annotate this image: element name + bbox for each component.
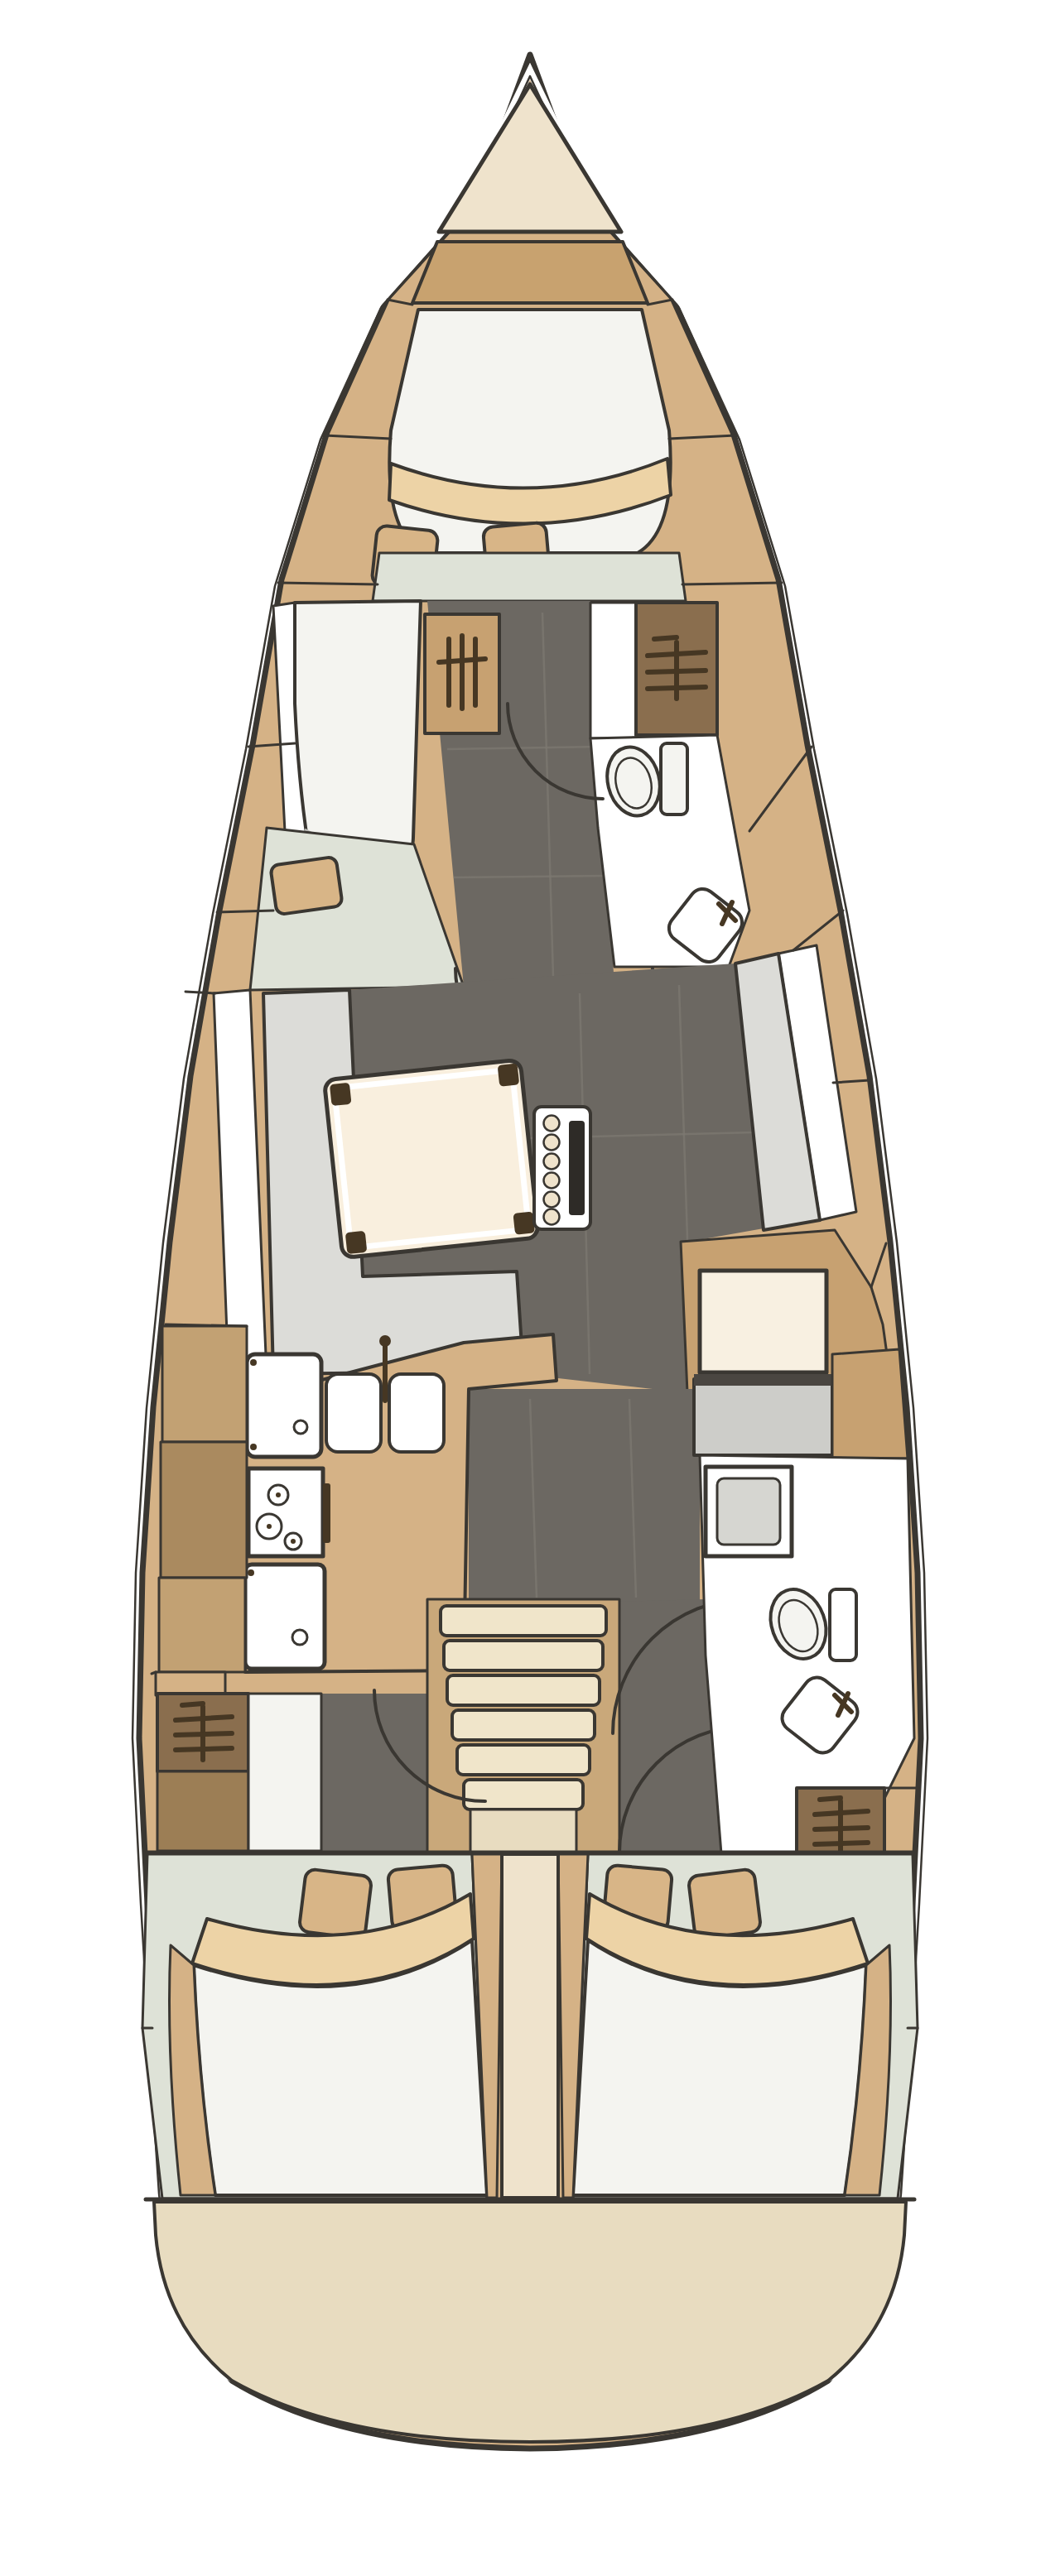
table-corner-pad <box>345 1231 368 1254</box>
step-tread <box>457 1745 590 1775</box>
bottle-hole <box>544 1209 560 1225</box>
bottle-hole <box>544 1154 560 1170</box>
fridge-lid <box>247 1354 321 1457</box>
step-tread <box>444 1641 603 1670</box>
burner-dot <box>291 1539 296 1544</box>
anchor-locker <box>439 84 621 232</box>
companionway-steps <box>427 1599 619 1853</box>
bottle-hole <box>544 1173 560 1189</box>
locker <box>159 1578 245 1672</box>
owner-cabin <box>371 310 686 601</box>
stbd-aft-cabin <box>573 1854 918 2199</box>
seat-cushion <box>270 857 343 916</box>
fwd-wardrobe-hanging <box>425 614 499 733</box>
hinge-dot <box>248 1569 254 1576</box>
bottle-hole <box>544 1135 560 1151</box>
bulkhead-strip <box>248 1694 321 1851</box>
bow-band <box>412 242 648 303</box>
toilet-tank <box>661 743 687 815</box>
sink-bowl <box>326 1374 381 1452</box>
step-tread <box>452 1710 595 1740</box>
head-bench <box>694 1379 832 1455</box>
head-counter <box>832 1349 908 1459</box>
aft-head <box>694 1349 914 1864</box>
locker <box>156 1672 225 1695</box>
floor-plan-canvas <box>0 0 1060 2576</box>
locker <box>157 1771 248 1851</box>
step-tread <box>447 1675 600 1705</box>
table-corner-pad <box>498 1063 520 1086</box>
bottle-hole <box>544 1116 560 1132</box>
bottle-rack <box>534 1107 590 1229</box>
port-aft-cabin <box>142 1854 487 2199</box>
divider-strip <box>502 1854 558 2198</box>
vberth-foot-strip <box>373 553 686 601</box>
dining-table <box>324 1060 538 1258</box>
transom <box>146 2199 914 2442</box>
step-tread <box>441 1606 606 1636</box>
stove <box>241 1468 330 1556</box>
fridge <box>247 1354 321 1457</box>
salon <box>214 945 891 1394</box>
burner-dot <box>267 1524 272 1529</box>
steps-landing <box>470 1809 576 1853</box>
center-divider <box>472 1854 588 2198</box>
table-corner-pad <box>330 1083 352 1106</box>
step-tread <box>464 1780 583 1809</box>
console-slot <box>569 1121 585 1215</box>
fwd-head-wardrobe <box>636 603 717 735</box>
oven <box>245 1564 325 1669</box>
gimbal-bar <box>323 1483 330 1543</box>
bottle-hole <box>544 1192 560 1208</box>
table-corner-pad <box>513 1211 535 1234</box>
toilet-tank <box>830 1589 856 1660</box>
hinge-dot <box>250 1359 257 1366</box>
oven-door <box>245 1564 325 1669</box>
hinge-dot <box>250 1444 257 1450</box>
floor-plan-page <box>0 0 1060 2576</box>
shower-floor <box>717 1478 780 1545</box>
locker <box>161 1442 247 1578</box>
pillow <box>688 1868 762 1939</box>
burner-dot <box>276 1492 281 1497</box>
port-wardrobe-shelves <box>157 1694 248 1771</box>
head-bulkhead-strip <box>590 603 636 738</box>
nav-seat-cushion <box>700 1271 826 1372</box>
transom-deck <box>154 2202 906 2442</box>
locker <box>162 1326 247 1442</box>
sink-bowl <box>389 1374 444 1452</box>
bench-edge <box>694 1374 832 1386</box>
pillow <box>299 1868 373 1939</box>
table-top <box>324 1060 538 1258</box>
shower <box>706 1467 792 1556</box>
faucet-icon <box>379 1335 391 1347</box>
galley-floor <box>469 1389 700 1602</box>
